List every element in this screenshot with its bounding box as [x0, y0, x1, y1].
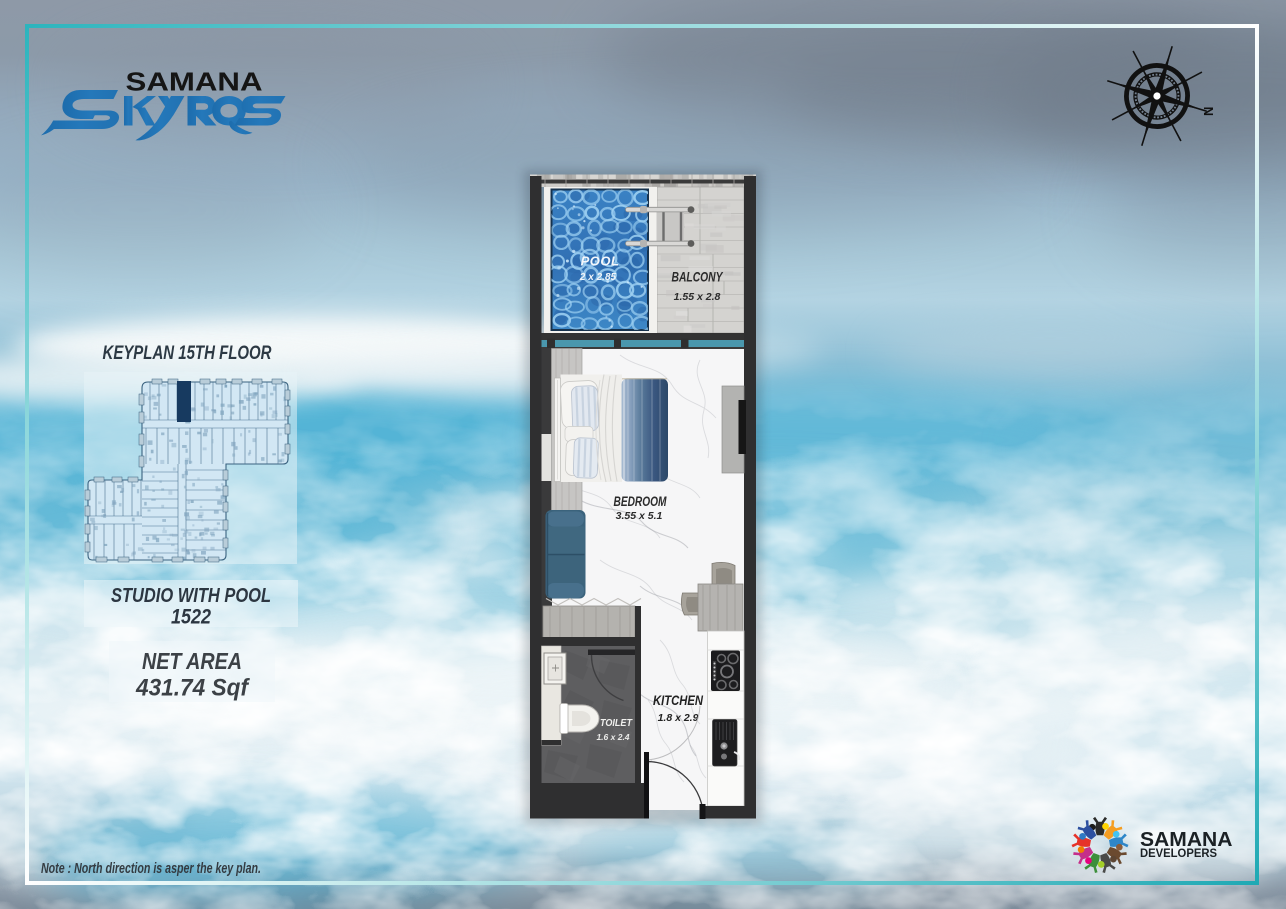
svg-text:BALCONY: BALCONY	[672, 270, 725, 285]
svg-text:431.74 Sqf: 431.74 Sqf	[135, 675, 250, 702]
svg-text:2 x 2.85: 2 x 2.85	[579, 272, 617, 283]
svg-text:1522: 1522	[171, 606, 211, 629]
svg-text:1.55 x 2.8: 1.55 x 2.8	[674, 291, 721, 303]
svg-text:KEYPLAN 15TH FLOOR: KEYPLAN 15TH FLOOR	[103, 342, 272, 364]
svg-text:N: N	[1201, 107, 1216, 116]
svg-text:DEVELOPERS: DEVELOPERS	[1140, 848, 1217, 860]
svg-text:1.6 x 2.4: 1.6 x 2.4	[596, 732, 629, 742]
svg-text:KITCHEN: KITCHEN	[653, 693, 703, 708]
svg-text:Note : North direction is aspe: Note : North direction is asper the key …	[41, 861, 261, 877]
svg-text:3.55 x 5.1: 3.55 x 5.1	[616, 510, 663, 522]
svg-text:SAMANA: SAMANA	[126, 67, 263, 97]
svg-text:TOILET: TOILET	[600, 718, 633, 729]
svg-text:POOL: POOL	[581, 254, 620, 269]
svg-text:BEDROOM: BEDROOM	[614, 494, 668, 509]
svg-text:1.8 x 2.9: 1.8 x 2.9	[658, 712, 699, 724]
svg-text:NET AREA: NET AREA	[142, 648, 242, 674]
svg-text:STUDIO WITH POOL: STUDIO WITH POOL	[111, 584, 271, 607]
